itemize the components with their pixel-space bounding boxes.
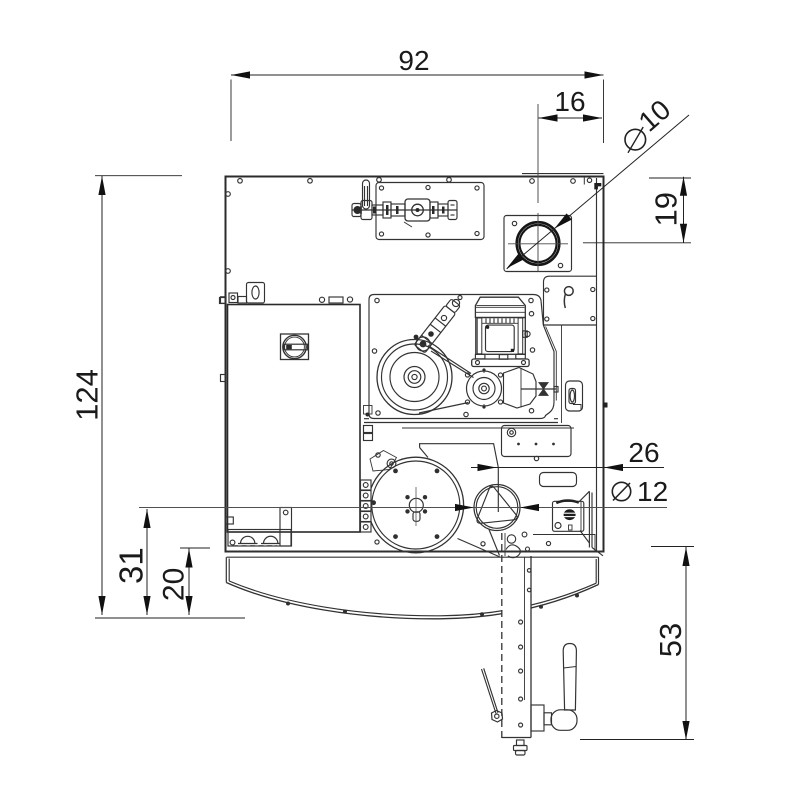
svg-text:16: 16: [554, 86, 585, 117]
svg-text:53: 53: [653, 623, 688, 657]
svg-text:12: 12: [637, 476, 668, 507]
svg-text:31: 31: [113, 547, 150, 584]
svg-text:26: 26: [628, 437, 659, 468]
svg-text:124: 124: [70, 369, 105, 421]
svg-text:92: 92: [398, 45, 429, 76]
svg-text:19: 19: [649, 192, 684, 226]
svg-text:20: 20: [158, 568, 191, 601]
